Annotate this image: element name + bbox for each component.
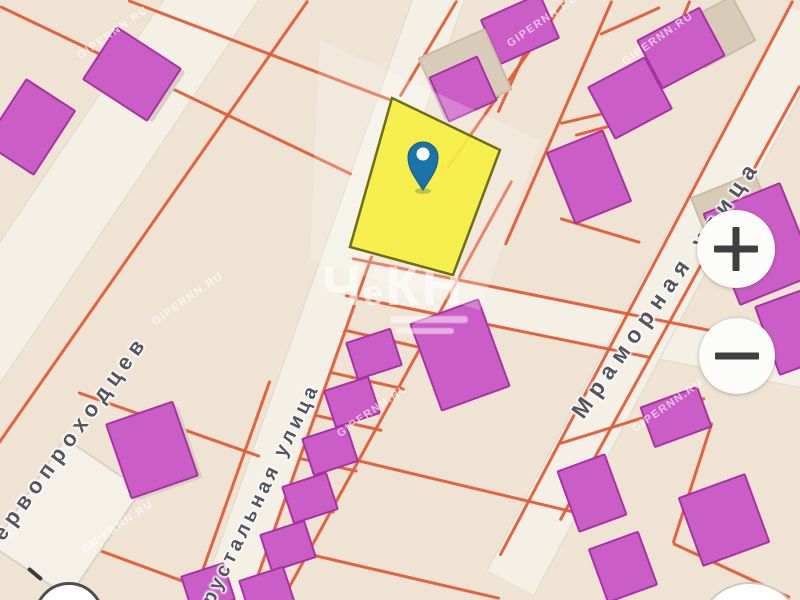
map-canvas[interactable]: ПервопроходцевХрустальная улицаМраморная…	[0, 0, 800, 600]
zoom-in-button[interactable]	[697, 210, 775, 288]
minus-icon	[715, 353, 759, 360]
plus-icon	[733, 227, 740, 271]
zoom-out-button[interactable]	[699, 318, 775, 394]
selection-overlay	[0, 0, 800, 600]
